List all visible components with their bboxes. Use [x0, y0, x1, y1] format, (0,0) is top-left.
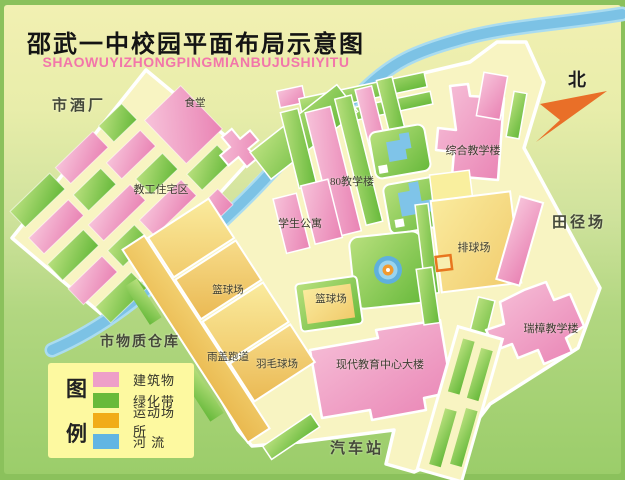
library-square-1: [368, 124, 431, 180]
legend-title: 图 例: [56, 369, 93, 452]
river-color-swatch: [93, 434, 119, 449]
label-modern-education-center: 现代教育中心大楼: [336, 356, 424, 372]
legend-row-river: 河 流: [93, 432, 186, 451]
legend-label: 建筑物: [133, 370, 175, 389]
label-basketball-court-center: 篮球场: [315, 291, 347, 306]
building-color-swatch: [93, 372, 119, 387]
legend-rows: 建筑物 绿化带 运动场所 河 流: [93, 369, 186, 452]
campus-map-page: 邵武一中校园平面布局示意图 SHAOWUYIZHONGPINGMIANBUJUS…: [0, 0, 625, 480]
legend-box: 图 例 建筑物 绿化带 运动场所 河 流: [48, 363, 194, 458]
label-basketball-court-west: 篮球场: [212, 282, 244, 297]
label-badminton-court: 羽毛球场: [256, 356, 298, 371]
small-court-marker: [436, 255, 453, 271]
label-volleyball-court: 排球场: [458, 239, 491, 255]
north-label: 北: [568, 66, 586, 92]
legend-title-char-bottom: 例: [66, 418, 87, 448]
label-bus-station: 汽车站: [330, 437, 384, 458]
label-city-warehouse: 市物质仓库: [100, 331, 180, 351]
page-title-pinyin: SHAOWUYIZHONGPINGMIANBUJUSHIYITU: [43, 54, 350, 70]
label-student-apartments: 学生公寓: [278, 215, 322, 231]
label-canteen: 食堂: [185, 95, 206, 110]
fountain-icon: [374, 256, 402, 284]
legend-title-char-top: 图: [66, 373, 87, 403]
legend-label: 河 流: [133, 432, 165, 451]
label-covered-track: 雨盖跑道: [207, 349, 249, 364]
label-track-field: 田径场: [552, 211, 606, 232]
label-city-winery: 市酒厂: [52, 94, 106, 115]
label-teaching-building-80: 80教学楼: [330, 173, 374, 189]
greenbelt-color-swatch: [93, 393, 119, 408]
legend-row-building: 建筑物: [93, 370, 186, 389]
label-comprehensive-building: 综合教学楼: [446, 142, 501, 158]
label-staff-residential: 教工住宅区: [134, 181, 189, 197]
sports-color-swatch: [93, 413, 119, 428]
legend-row-sports: 运动场所: [93, 411, 186, 430]
label-ruizhang-building: 瑞樟教学楼: [524, 320, 579, 336]
